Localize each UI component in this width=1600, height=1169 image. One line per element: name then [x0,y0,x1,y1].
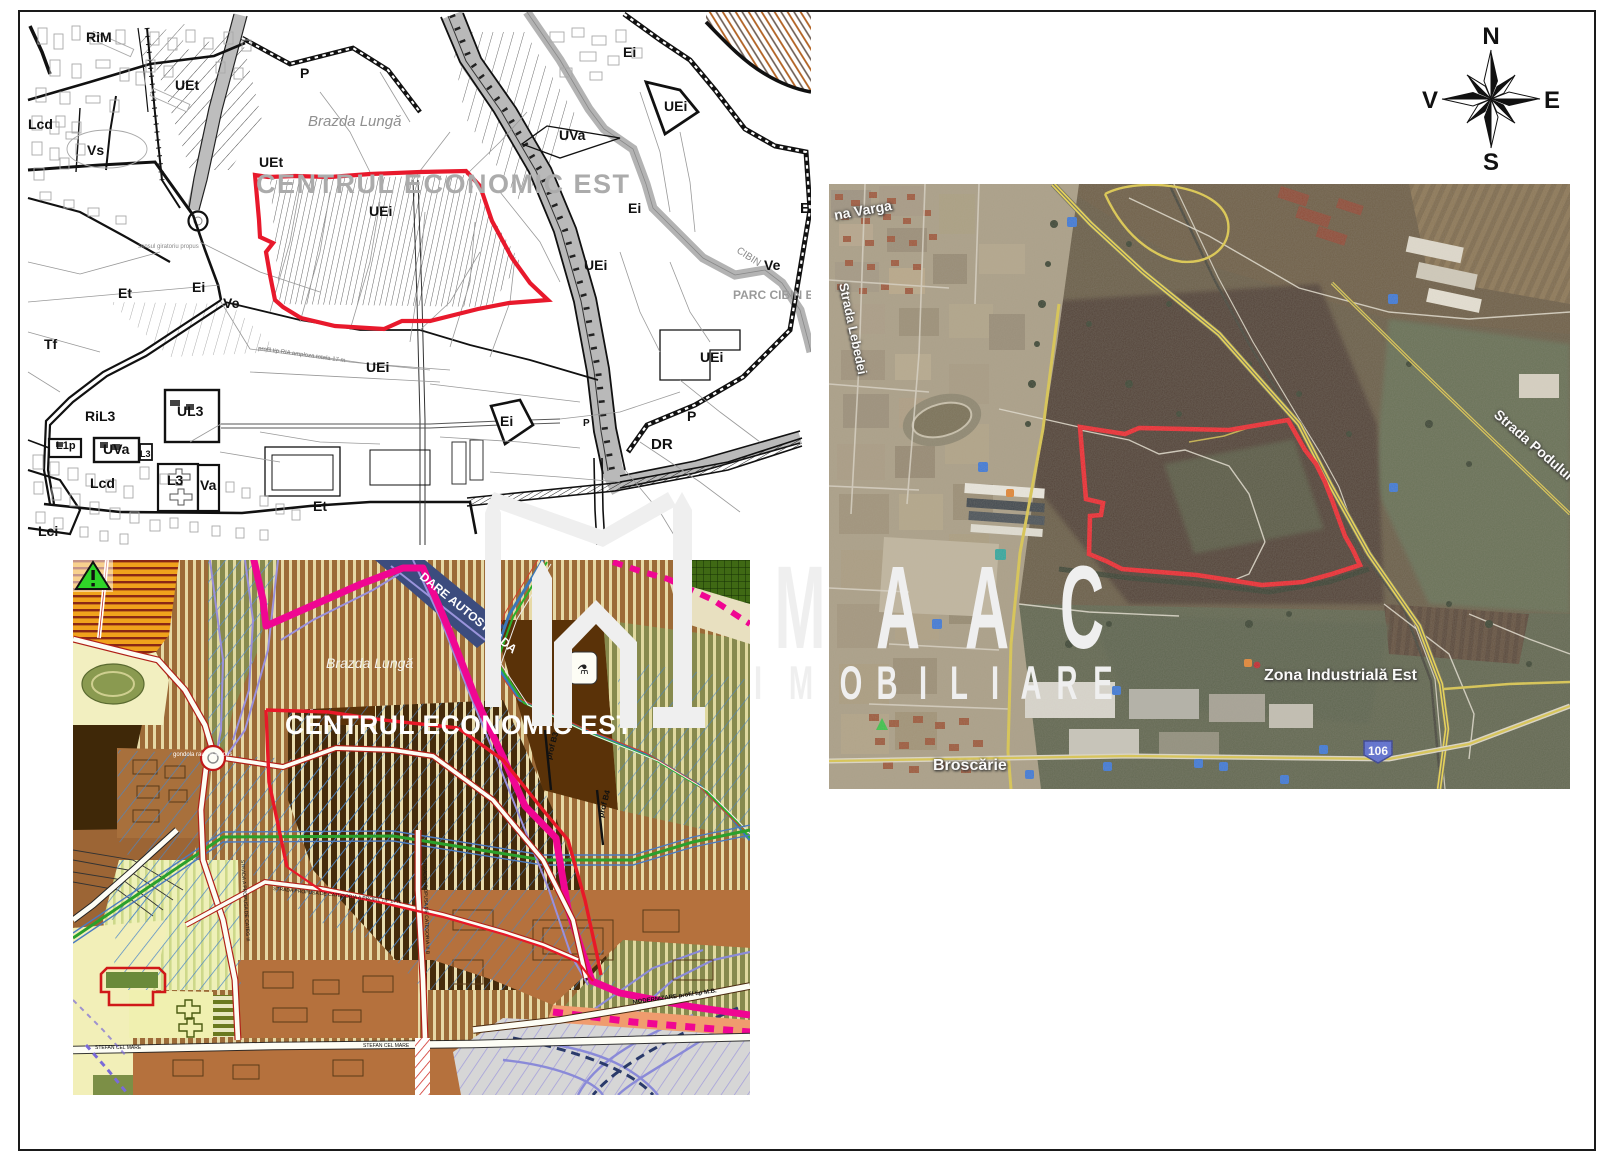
svg-text:A: A [965,541,1009,673]
svg-text:R: R [1056,658,1077,710]
svg-text:O: O [840,658,863,710]
svg-text:A: A [876,541,920,673]
svg-text:L: L [950,658,968,710]
svg-text:B: B [876,658,897,710]
svg-text:C: C [1060,541,1104,673]
svg-text:A: A [1020,658,1041,710]
svg-text:I: I [919,658,927,710]
svg-text:E: E [1093,658,1112,710]
svg-text:I: I [754,658,762,710]
svg-text:I: I [991,658,999,710]
svg-text:M: M [774,541,825,673]
svg-text:M: M [789,658,813,710]
